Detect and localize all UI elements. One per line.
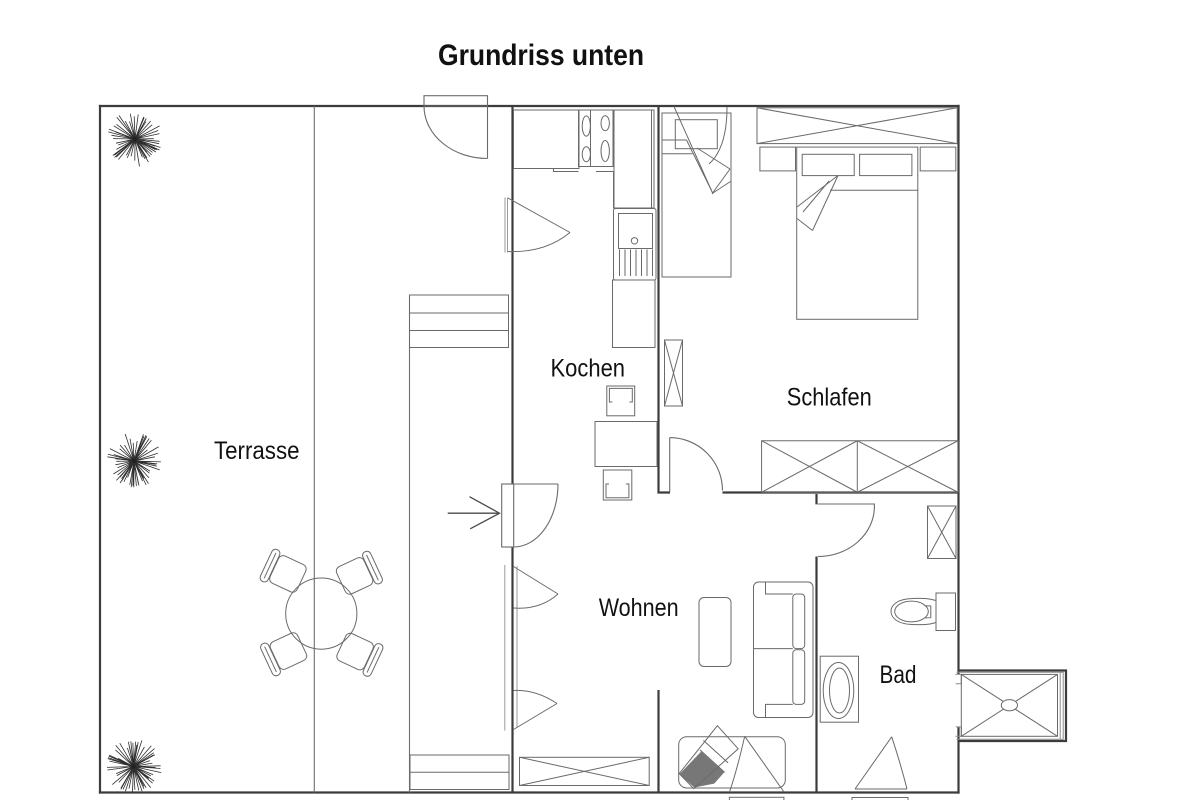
svg-text:Wohnen: Wohnen xyxy=(599,594,679,622)
svg-text:Bad: Bad xyxy=(880,661,917,689)
svg-text:Schlafen: Schlafen xyxy=(787,383,872,411)
svg-text:Terrasse: Terrasse xyxy=(214,437,300,465)
svg-text:Kochen: Kochen xyxy=(551,354,626,382)
svg-text:Grundriss unten: Grundriss unten xyxy=(438,39,644,72)
